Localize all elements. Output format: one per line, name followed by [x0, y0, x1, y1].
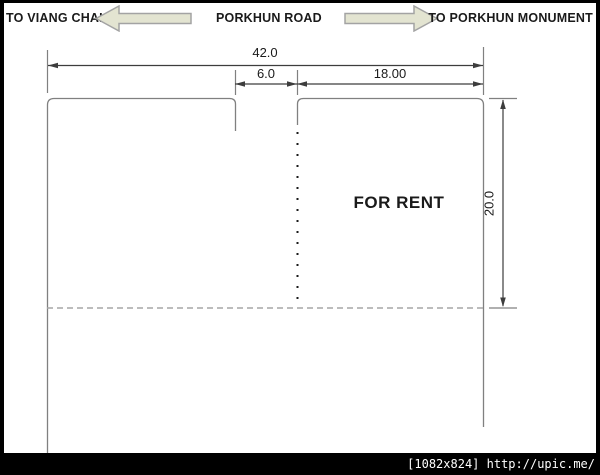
- rent-parcel-outline: [298, 99, 484, 428]
- for-rent-label: FOR RENT: [349, 193, 449, 213]
- plot-diagram: [0, 0, 600, 453]
- watermark-caption: [1082x824] http://upic.me/: [407, 457, 595, 471]
- dimension-label-total: 42.0: [235, 45, 295, 60]
- left-parcel-outline: [48, 99, 236, 454]
- screenshot-root: TO VIANG CHAI PORKHUN ROAD TO PORKHUN MO…: [0, 0, 600, 475]
- dimension-label-depth: 20.0: [482, 184, 497, 224]
- arrowhead: [297, 81, 307, 87]
- dimension-label-rent: 18.00: [360, 66, 420, 81]
- arrowhead: [500, 298, 506, 308]
- arrowhead: [48, 63, 58, 69]
- arrowhead: [235, 81, 245, 87]
- arrowhead: [287, 81, 297, 87]
- arrowhead: [473, 81, 483, 87]
- arrowhead: [500, 100, 506, 110]
- watermark-bar: [1082x824] http://upic.me/: [0, 453, 600, 475]
- dimension-label-gap: 6.0: [236, 66, 296, 81]
- arrowhead: [473, 63, 483, 69]
